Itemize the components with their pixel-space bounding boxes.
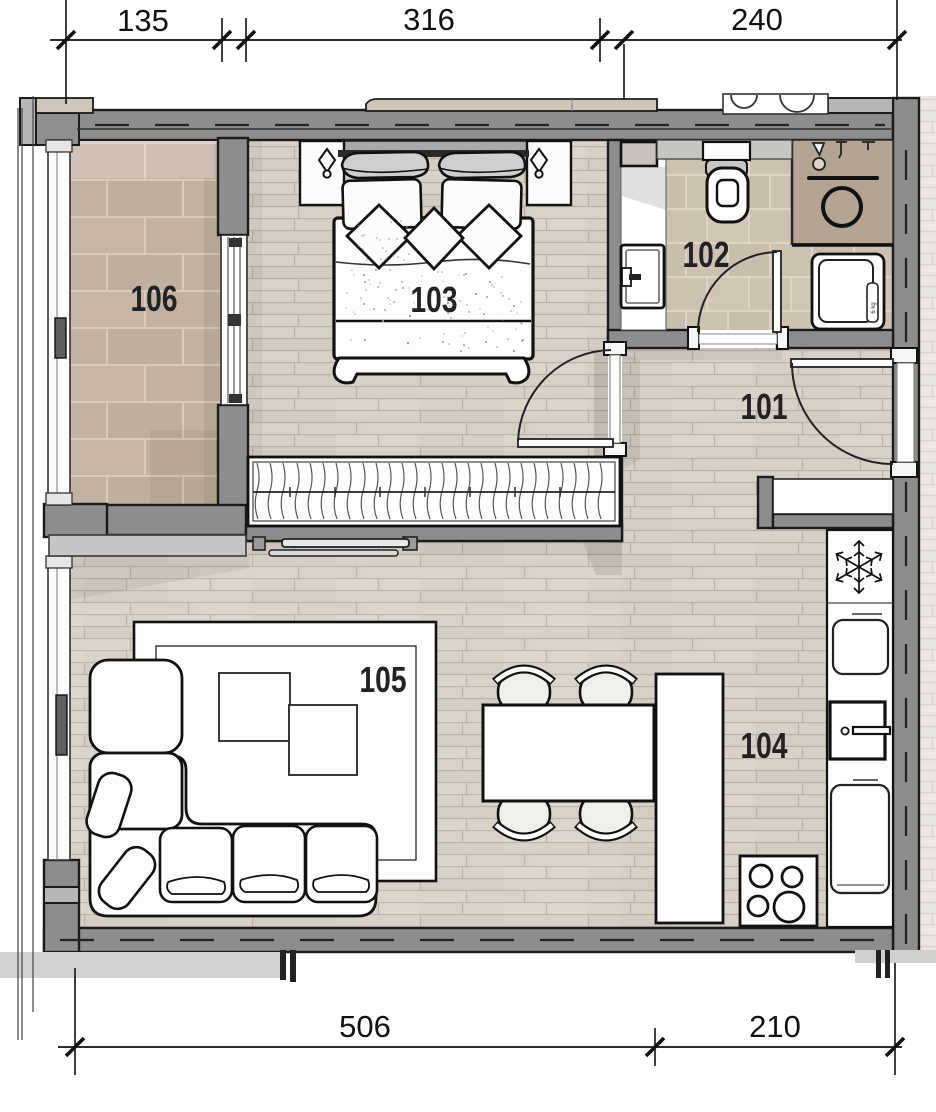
svg-text:106: 106 <box>131 278 178 319</box>
svg-text:102: 102 <box>683 234 730 275</box>
svg-text:135: 135 <box>117 3 169 38</box>
svg-text:240: 240 <box>731 2 783 37</box>
svg-text:101: 101 <box>741 386 788 427</box>
svg-text:506: 506 <box>339 1009 391 1044</box>
svg-text:210: 210 <box>749 1009 801 1044</box>
svg-text:316: 316 <box>403 2 455 37</box>
svg-text:105: 105 <box>360 659 407 700</box>
svg-text:104: 104 <box>741 725 788 766</box>
svg-text:103: 103 <box>411 279 458 320</box>
svg-text:6 kg: 6 kg <box>871 302 877 313</box>
